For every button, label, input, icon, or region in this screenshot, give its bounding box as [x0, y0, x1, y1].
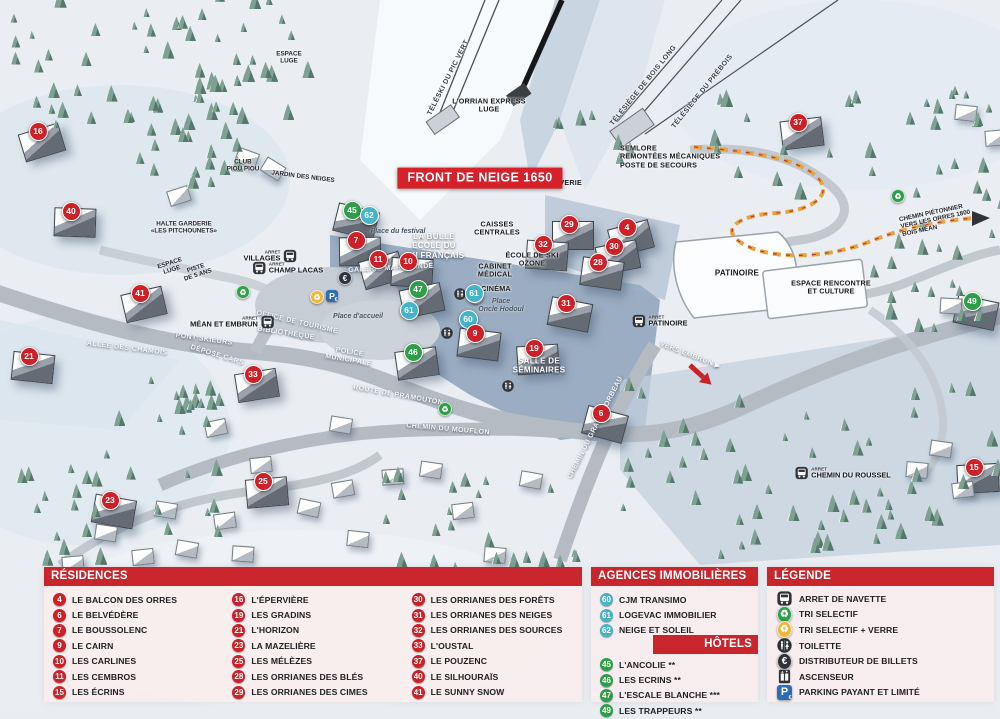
map-terrain: [0, 0, 1000, 706]
legend-label: LES TRAPPEURS **: [619, 706, 702, 716]
legend-badge: 49: [600, 704, 613, 717]
ski-resort-map-page: FRONT DE NEIGE 1650TÉLÉSKI DU PIC VERTL'…: [0, 0, 1000, 706]
